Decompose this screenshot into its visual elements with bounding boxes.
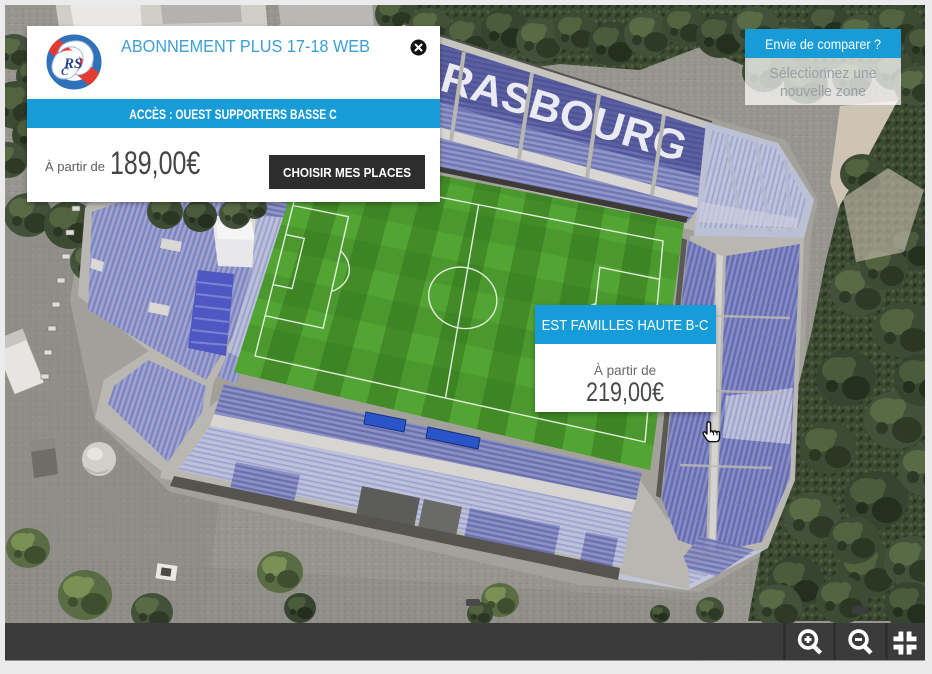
svg-text:189,00€: 189,00€ [110, 146, 200, 182]
svg-text:Envie de comparer ?: Envie de comparer ? [765, 36, 881, 52]
svg-text:EST FAMILLES HAUTE B-C: EST FAMILLES HAUTE B-C [542, 316, 709, 333]
svg-text:À partir de: À partir de [594, 363, 656, 378]
svg-text:nouvelle zone: nouvelle zone [780, 84, 866, 101]
svg-text:C: C [61, 66, 69, 78]
svg-text:CHOISIR MES PLACES: CHOISIR MES PLACES [283, 165, 411, 180]
svg-text:219,00€: 219,00€ [586, 378, 664, 408]
svg-text:ACCÈS : OUEST SUPPORTERS BASSE: ACCÈS : OUEST SUPPORTERS BASSE C [129, 106, 337, 123]
svg-text:À partir de: À partir de [45, 159, 105, 174]
svg-text:Sélectionnez une: Sélectionnez une [770, 66, 877, 83]
svg-text:ABONNEMENT PLUS 17-18 WEB: ABONNEMENT PLUS 17-18 WEB [121, 36, 370, 56]
